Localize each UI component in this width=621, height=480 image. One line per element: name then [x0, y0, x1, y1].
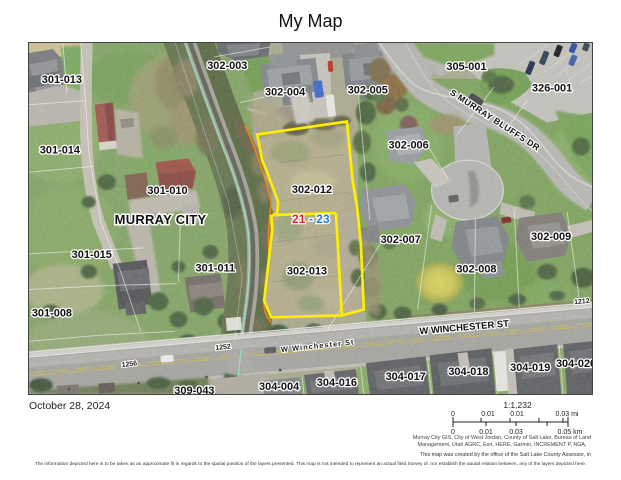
svg-text:302-013: 302-013: [287, 266, 327, 278]
svg-text:0.03 mi: 0.03 mi: [556, 411, 579, 418]
svg-text:302-008: 302-008: [456, 264, 496, 276]
svg-text:305-001: 305-001: [446, 61, 486, 73]
svg-text:1212: 1212: [574, 298, 590, 306]
svg-text:0.01: 0.01: [510, 411, 524, 418]
svg-text:304-019: 304-019: [510, 362, 550, 374]
svg-text:304-004: 304-004: [259, 381, 300, 393]
svg-text:301-013: 301-013: [42, 74, 82, 86]
svg-text:304-017: 304-017: [386, 371, 426, 383]
svg-text:MURRAY CITY: MURRAY CITY: [115, 212, 207, 227]
svg-text:326-001: 326-001: [532, 83, 572, 95]
svg-text:309-043: 309-043: [174, 385, 214, 394]
svg-text:302-003: 302-003: [207, 60, 247, 72]
svg-text:304-020: 304-020: [556, 358, 592, 370]
svg-text:301-014: 301-014: [40, 144, 81, 156]
svg-text:304-016: 304-016: [317, 377, 357, 389]
svg-text:21: 21: [292, 212, 306, 226]
svg-text:302-012: 302-012: [292, 184, 332, 196]
svg-text:302-007: 302-007: [381, 234, 421, 246]
svg-text:304-018: 304-018: [448, 366, 488, 378]
svg-text:302-006: 302-006: [389, 139, 429, 151]
svg-text:302-009: 302-009: [531, 231, 571, 243]
svg-text:- 23: - 23: [309, 212, 330, 226]
svg-text:302-005: 302-005: [348, 85, 388, 97]
svg-text:301-011: 301-011: [196, 263, 236, 275]
svg-text:0: 0: [451, 411, 455, 418]
svg-text:0.01: 0.01: [481, 411, 495, 418]
svg-text:301-015: 301-015: [72, 249, 112, 261]
svg-text:301-010: 301-010: [147, 185, 187, 197]
svg-text:302-004: 302-004: [265, 87, 306, 99]
svg-text:301-008: 301-008: [32, 307, 72, 319]
